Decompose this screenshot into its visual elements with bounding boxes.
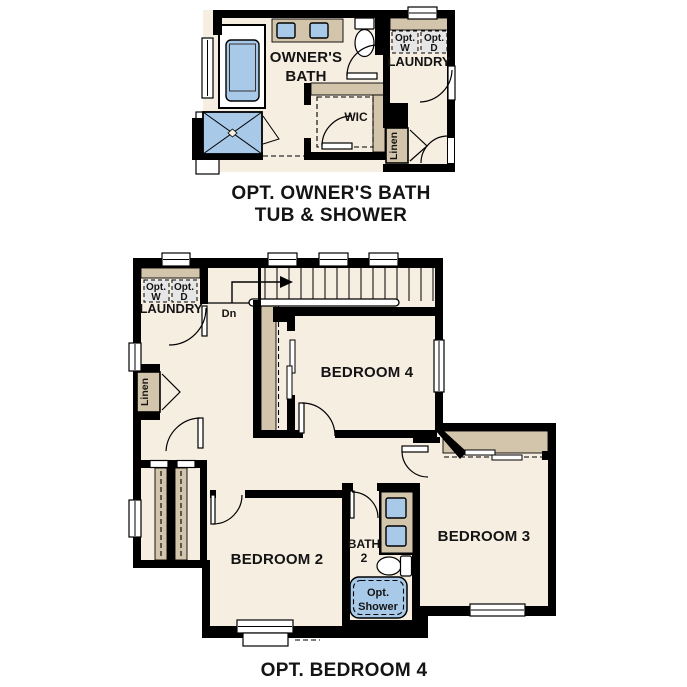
door-leaf (198, 418, 203, 448)
room-label-linen: Linen (139, 378, 151, 406)
opt-shower-label: Opt. (367, 587, 389, 599)
bathtub (226, 40, 259, 101)
room-label-owners-bath: BATH (285, 68, 326, 85)
plan-caption: OPT. BEDROOM 4 (261, 660, 428, 681)
closet-shelf (261, 303, 276, 433)
opt-shower-label: Shower (358, 601, 398, 613)
door-leaf (347, 73, 377, 79)
opt-dryer-label: D (430, 43, 437, 54)
toilet-tank-icon (355, 18, 374, 29)
top-plan-owners-bath: OWNER'S BATH LAUNDRY Opt. W Opt. D WIC L… (192, 7, 455, 226)
plan-caption: OPT. OWNER'S BATH (231, 183, 430, 204)
sink-icon (277, 23, 295, 38)
toilet-icon (377, 557, 401, 575)
room-label-bedroom4: BEDROOM 4 (321, 364, 414, 381)
room-label-linen: Linen (388, 132, 400, 160)
closet-opening (177, 461, 195, 468)
door-leaf (299, 403, 304, 433)
laundry-shelf (141, 268, 200, 278)
room-label-bedroom2: BEDROOM 2 (231, 551, 324, 568)
floorplan-page: OWNER'S BATH LAUNDRY Opt. W Opt. D WIC L… (0, 0, 687, 687)
room-label-owners-bath: OWNER'S (270, 49, 342, 66)
door-leaf (211, 495, 215, 524)
room-label-laundry: LAUNDRY (387, 54, 450, 69)
bottom-plan-opt-bedroom4: LAUNDRY Opt. W Opt. D Dn Linen BEDROOM 4… (129, 253, 556, 681)
room-label-bath2: 2 (361, 551, 368, 565)
plan-caption: TUB & SHOWER (255, 205, 407, 226)
stair-down-label: Dn (222, 308, 237, 320)
opt-dryer-label: D (180, 292, 187, 303)
laundry-shelf (390, 18, 448, 30)
closet-opening (150, 461, 168, 468)
floorplan-canvas: OWNER'S BATH LAUNDRY Opt. W Opt. D WIC L… (0, 0, 687, 687)
toilet-tank-icon (401, 556, 412, 576)
sink-icon (386, 498, 406, 518)
sink-icon (310, 23, 328, 38)
door-leaf (350, 491, 354, 518)
room-label-laundry: LAUNDRY (139, 301, 202, 316)
door-leaf (322, 143, 352, 149)
opt-washer-label: W (151, 292, 161, 303)
room-label-bath2: BATH (348, 537, 380, 551)
room-label-bedroom3: BEDROOM 3 (438, 528, 531, 545)
opt-washer-label: W (400, 43, 410, 54)
sink-icon (386, 526, 406, 546)
stair-railing (249, 299, 399, 306)
room-label-wic: WIC (344, 110, 368, 124)
door-leaf (402, 446, 428, 452)
